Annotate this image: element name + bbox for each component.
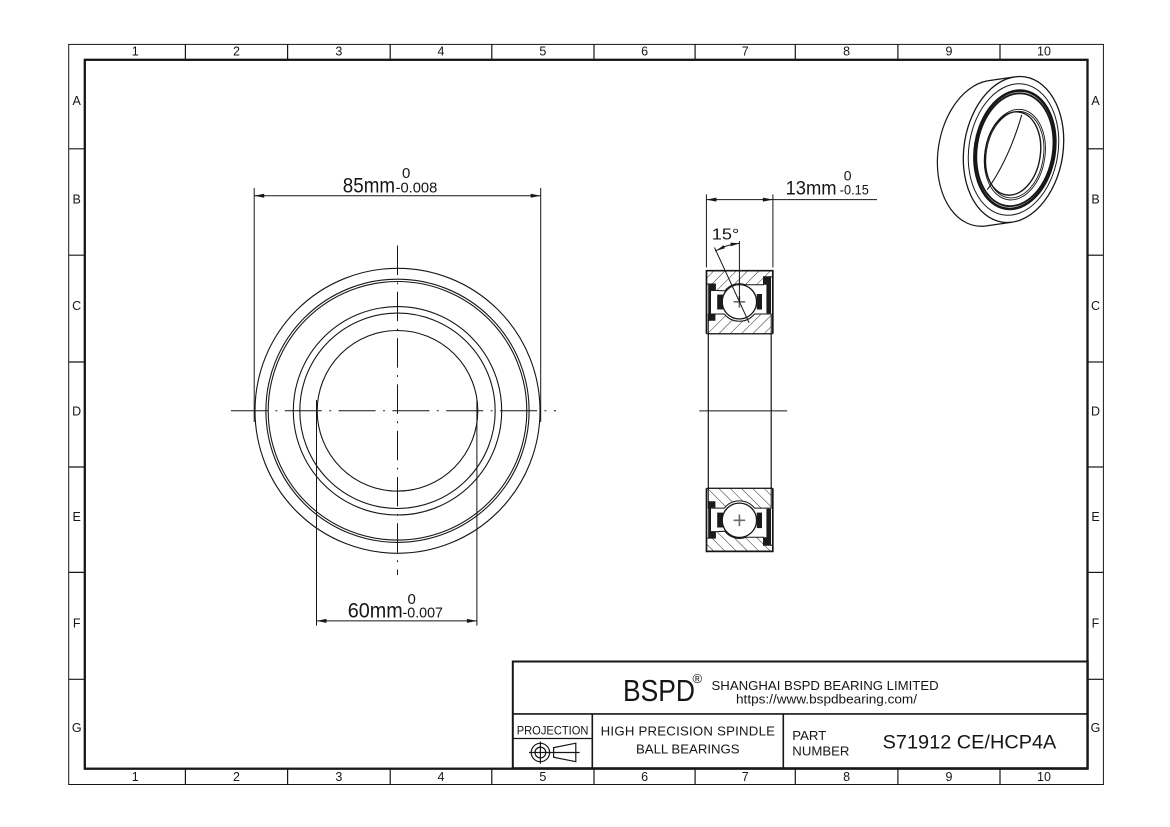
svg-text:C: C [72,299,81,313]
svg-text:®: ® [693,671,703,686]
svg-text:A: A [1091,94,1100,108]
svg-text:85mm: 85mm [343,174,395,198]
svg-text:C: C [1091,299,1100,313]
svg-text:13mm: 13mm [786,178,837,200]
svg-text:G: G [72,721,82,735]
svg-text:6: 6 [641,45,648,59]
svg-text:3: 3 [335,45,342,59]
svg-text:BALL BEARINGS: BALL BEARINGS [636,742,740,757]
svg-text:G: G [1091,721,1101,735]
svg-text:1: 1 [132,45,139,59]
svg-text:S71912 CE/HCP4A: S71912 CE/HCP4A [883,732,1057,754]
svg-text:8: 8 [843,45,850,59]
svg-text:-0.15: -0.15 [840,182,869,198]
svg-text:F: F [73,617,81,631]
svg-text:5: 5 [539,770,546,784]
svg-text:10: 10 [1037,45,1051,59]
svg-text:4: 4 [438,45,445,59]
svg-text:7: 7 [742,770,749,784]
svg-text:60mm: 60mm [348,599,403,623]
svg-text:PROJECTION: PROJECTION [517,726,589,738]
svg-text:1: 1 [132,770,139,784]
svg-text:7: 7 [742,45,749,59]
svg-text:-0.008: -0.008 [396,180,438,197]
svg-text:2: 2 [233,770,240,784]
svg-text:4: 4 [438,770,445,784]
svg-text:6: 6 [641,770,648,784]
svg-text:10: 10 [1037,770,1051,784]
svg-text:E: E [1091,510,1099,524]
svg-text:8: 8 [843,770,850,784]
svg-text:https://www.bspdbearing.com/: https://www.bspdbearing.com/ [736,692,917,707]
svg-text:3: 3 [335,770,342,784]
svg-text:9: 9 [946,770,953,784]
svg-text:PART: PART [792,728,826,743]
svg-text:NUMBER: NUMBER [792,743,849,758]
svg-text:D: D [1091,405,1100,419]
svg-text:BSPD: BSPD [623,674,695,708]
svg-text:B: B [1091,193,1099,207]
svg-text:A: A [73,94,82,108]
svg-text:9: 9 [946,45,953,59]
svg-text:2: 2 [233,45,240,59]
svg-text:-0.007: -0.007 [403,605,444,622]
svg-text:F: F [1092,617,1100,631]
svg-text:5: 5 [539,45,546,59]
svg-text:HIGH PRECISION SPINDLE: HIGH PRECISION SPINDLE [601,724,776,739]
svg-text:D: D [72,405,81,419]
svg-text:E: E [73,510,81,524]
svg-text:B: B [73,193,81,207]
svg-text:15°: 15° [712,227,740,244]
